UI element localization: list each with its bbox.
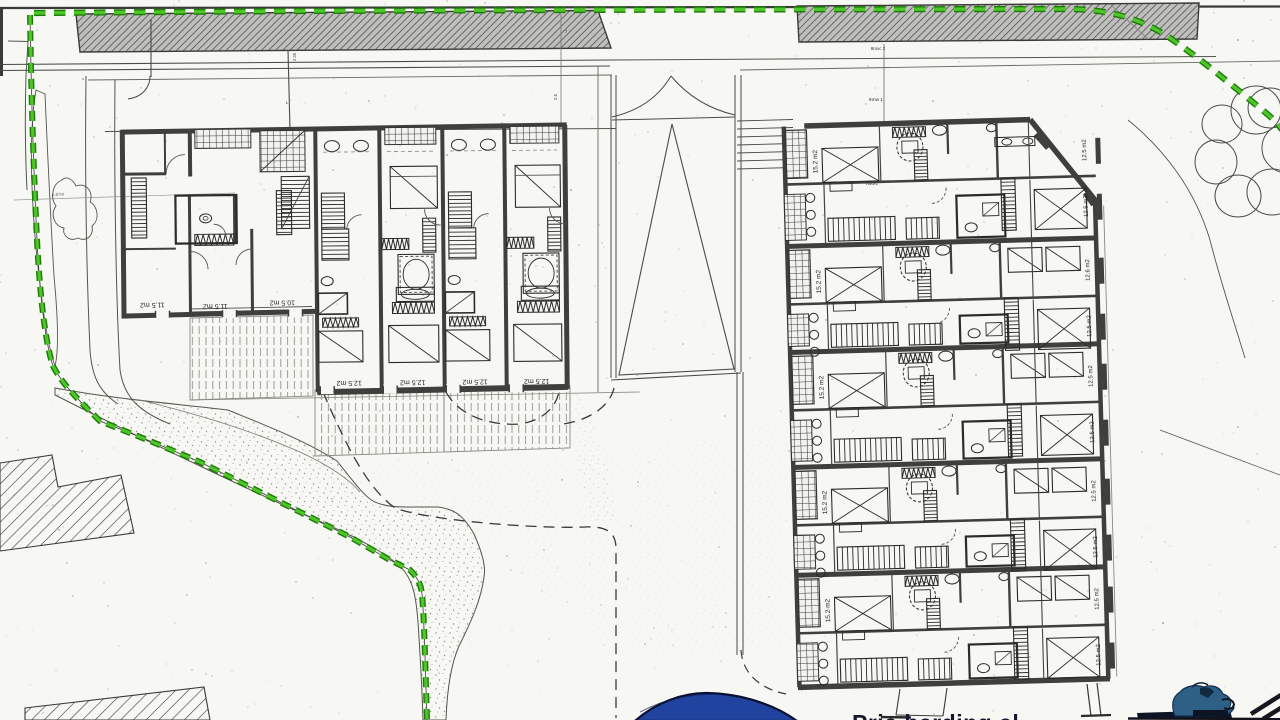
svg-text:12.5 m2: 12.5 m2	[462, 378, 487, 385]
svg-text:12.5 m2: 12.5 m2	[524, 377, 549, 384]
svg-text:12.5 m2: 12.5 m2	[1093, 535, 1100, 558]
svg-text:11.5 m2: 11.5 m2	[140, 301, 165, 308]
svg-text:15.2 m2: 15.2 m2	[815, 269, 823, 293]
svg-text:12.5 m2: 12.5 m2	[1087, 314, 1094, 337]
svg-text:Prie berding al: Prie berding al	[852, 710, 1019, 720]
svg-text:10.5 m2: 10.5 m2	[270, 298, 295, 305]
svg-text:12.5 m2: 12.5 m2	[1090, 420, 1097, 443]
svg-text:12.5 m2: 12.5 m2	[1083, 195, 1090, 218]
svg-text:15.2 m2: 15.2 m2	[824, 598, 832, 622]
svg-text:12.5 m2: 12.5 m2	[400, 378, 425, 385]
svg-text:2.5: 2.5	[553, 93, 558, 100]
svg-text:12.6 m2: 12.6 m2	[1085, 259, 1092, 282]
svg-text:15.2 m2: 15.2 m2	[812, 149, 820, 173]
svg-text:12.5 m2: 12.5 m2	[1091, 479, 1098, 502]
svg-text:15.2 m2: 15.2 m2	[821, 490, 829, 514]
svg-text:8mxc 2: 8mxc 2	[871, 46, 886, 51]
svg-text:12.5 m2: 12.5 m2	[1082, 139, 1089, 162]
svg-text:11.5 m2: 11.5 m2	[203, 302, 228, 309]
svg-text:12.5 m2: 12.5 m2	[1094, 587, 1101, 610]
svg-text:12.5 m2: 12.5 m2	[336, 379, 361, 386]
svg-text:A 6?m: A 6?m	[51, 192, 64, 198]
svg-text:9mw 1: 9mw 1	[869, 97, 883, 103]
svg-text:15.2 m2: 15.2 m2	[818, 375, 826, 399]
svg-text:12.5 m2: 12.5 m2	[1096, 643, 1103, 666]
svg-text:2.35: 2.35	[292, 52, 297, 61]
svg-text:12.5 m2: 12.5 m2	[1088, 364, 1095, 387]
